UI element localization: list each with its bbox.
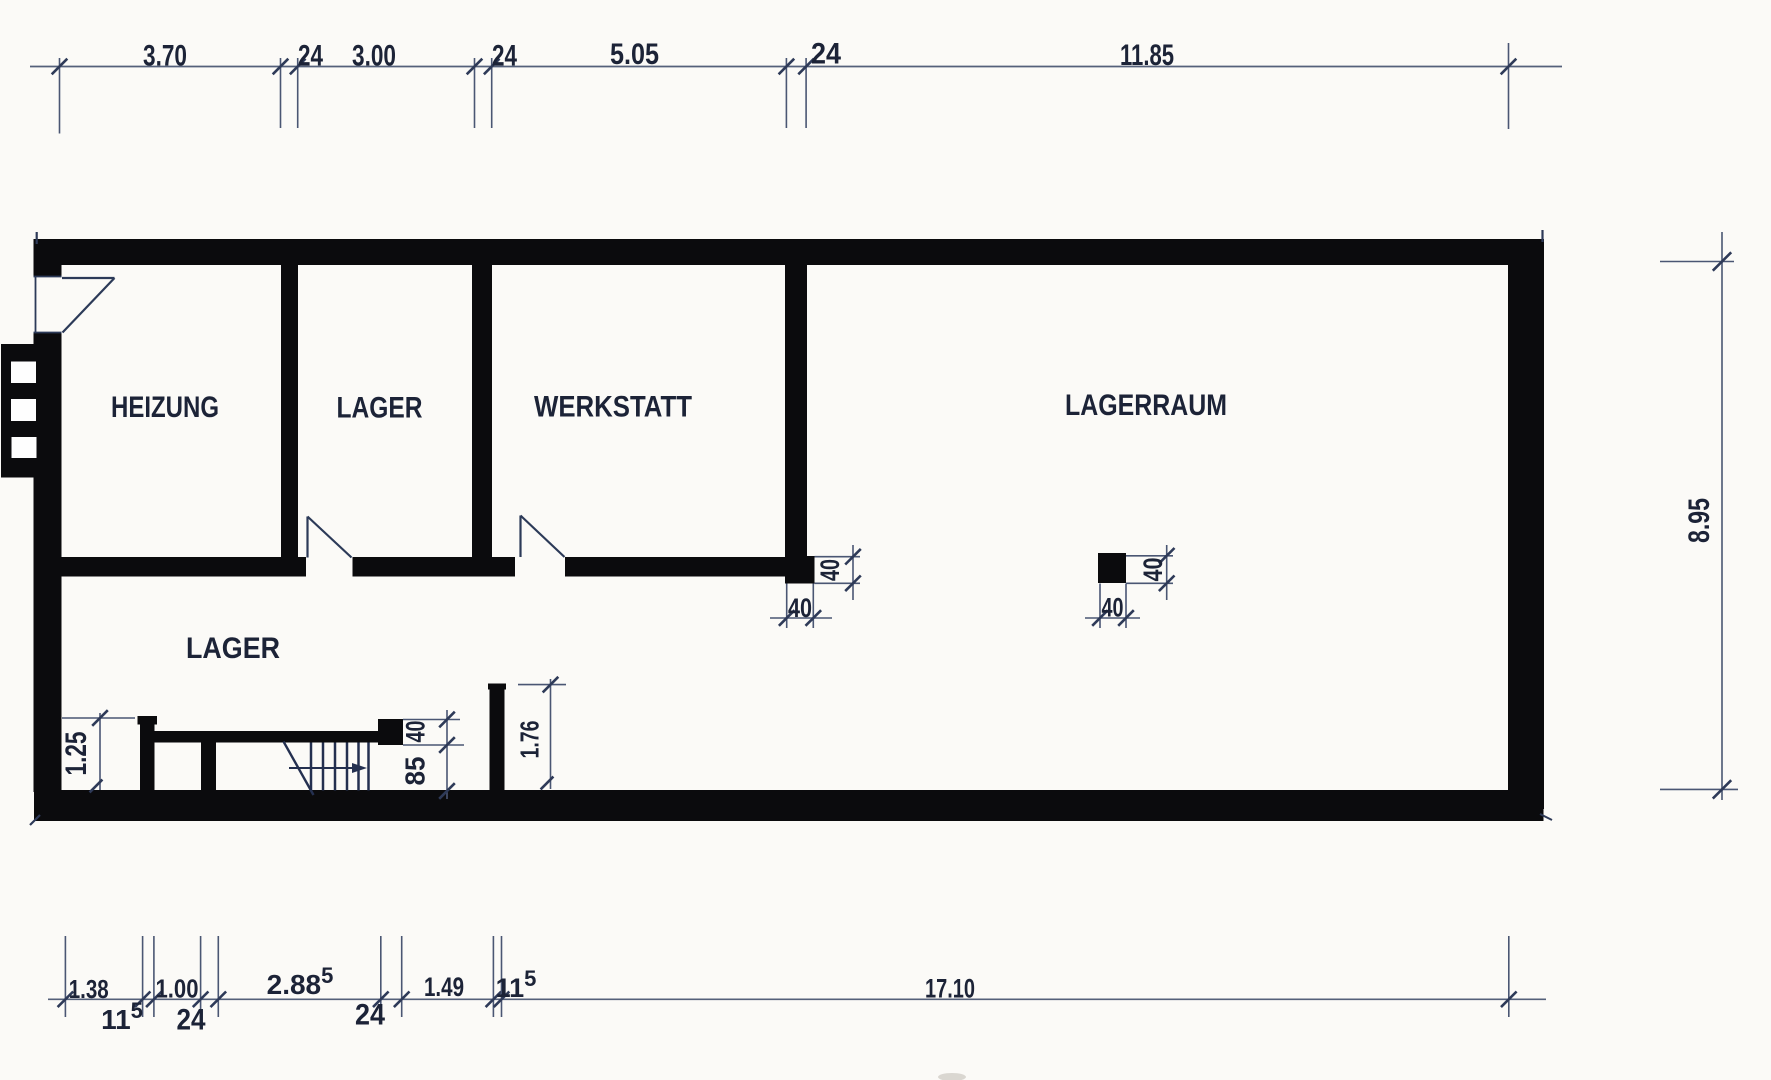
svg-text:LAGER: LAGER — [186, 632, 280, 665]
svg-text:24: 24 — [492, 40, 517, 73]
svg-text:8.95: 8.95 — [1683, 498, 1716, 543]
svg-text:24: 24 — [177, 1004, 206, 1037]
svg-text:HEIZUNG: HEIZUNG — [111, 391, 219, 424]
svg-text:1.76: 1.76 — [515, 721, 545, 759]
svg-text:1.00: 1.00 — [156, 974, 199, 1004]
svg-text:5.05: 5.05 — [610, 38, 659, 71]
svg-text:40: 40 — [788, 593, 812, 623]
svg-text:24: 24 — [811, 38, 841, 71]
svg-text:40: 40 — [1138, 558, 1168, 582]
svg-text:3.70: 3.70 — [143, 40, 187, 73]
svg-text:1.49: 1.49 — [424, 972, 464, 1002]
svg-text:40: 40 — [815, 559, 845, 581]
svg-text:LAGERRAUM: LAGERRAUM — [1065, 389, 1227, 422]
svg-text:24: 24 — [355, 999, 385, 1032]
svg-text:40: 40 — [1102, 593, 1124, 623]
svg-text:1.38: 1.38 — [69, 974, 109, 1004]
svg-text:11.85: 11.85 — [1120, 39, 1174, 72]
svg-text:85: 85 — [400, 757, 431, 786]
svg-text:3.00: 3.00 — [352, 40, 396, 73]
svg-text:WERKSTATT: WERKSTATT — [534, 391, 692, 424]
svg-text:LAGER: LAGER — [337, 392, 423, 425]
svg-text:1.25: 1.25 — [60, 732, 93, 776]
svg-text:24: 24 — [298, 40, 323, 73]
svg-text:17.10: 17.10 — [925, 974, 975, 1004]
svg-text:40: 40 — [401, 721, 431, 743]
